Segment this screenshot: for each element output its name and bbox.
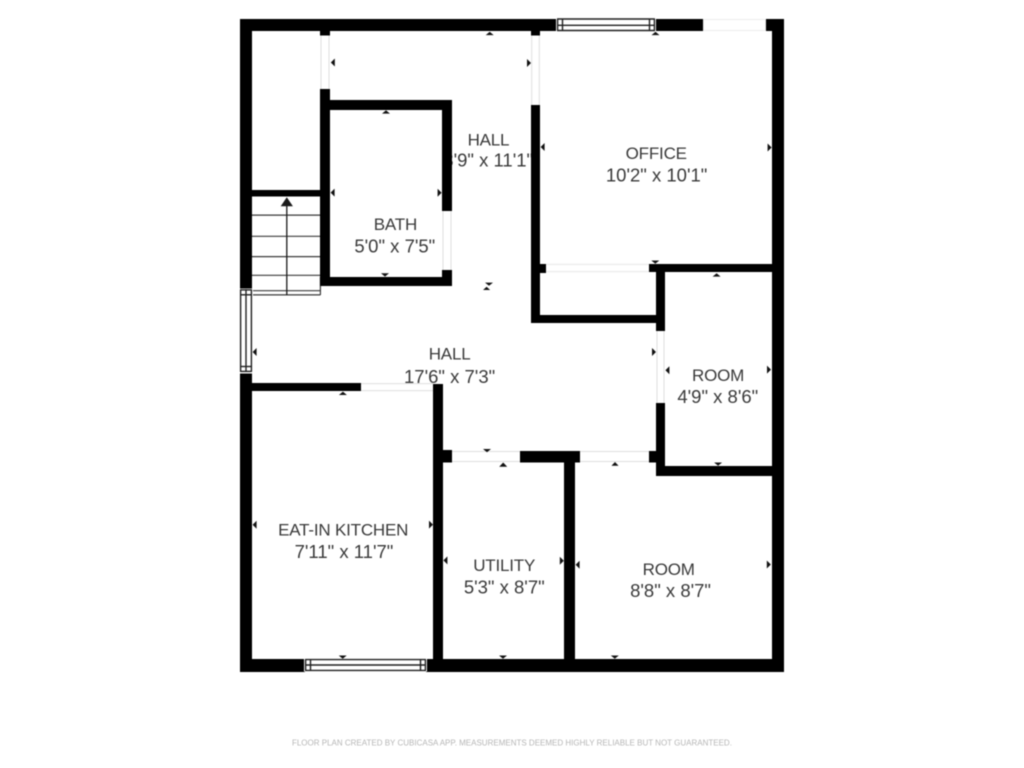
svg-text:OFFICE: OFFICE [626,144,687,163]
svg-text:ROOM: ROOM [692,366,744,385]
svg-text:HALL: HALL [429,344,471,363]
svg-text:HALL: HALL [468,130,510,149]
svg-text:17'6" x 7'3": 17'6" x 7'3" [404,366,495,387]
svg-text:BATH: BATH [374,215,417,234]
svg-text:UTILITY: UTILITY [473,556,535,575]
svg-text:5'0" x 7'5": 5'0" x 7'5" [354,236,435,257]
svg-text:FLOOR PLAN CREATED BY CUBICASA: FLOOR PLAN CREATED BY CUBICASA APP. MEAS… [292,739,732,748]
svg-text:10'2" x 10'1": 10'2" x 10'1" [606,164,707,185]
svg-text:3'9" x 11'1": 3'9" x 11'1" [443,149,533,170]
svg-text:EAT-IN KITCHEN: EAT-IN KITCHEN [278,520,408,539]
svg-text:8'8" x 8'7": 8'8" x 8'7" [630,580,711,601]
svg-text:ROOM: ROOM [643,560,695,579]
svg-text:4'9" x 8'6": 4'9" x 8'6" [677,386,758,407]
svg-text:5'3" x 8'7": 5'3" x 8'7" [464,577,545,598]
svg-text:7'11" x 11'7": 7'11" x 11'7" [295,541,394,562]
